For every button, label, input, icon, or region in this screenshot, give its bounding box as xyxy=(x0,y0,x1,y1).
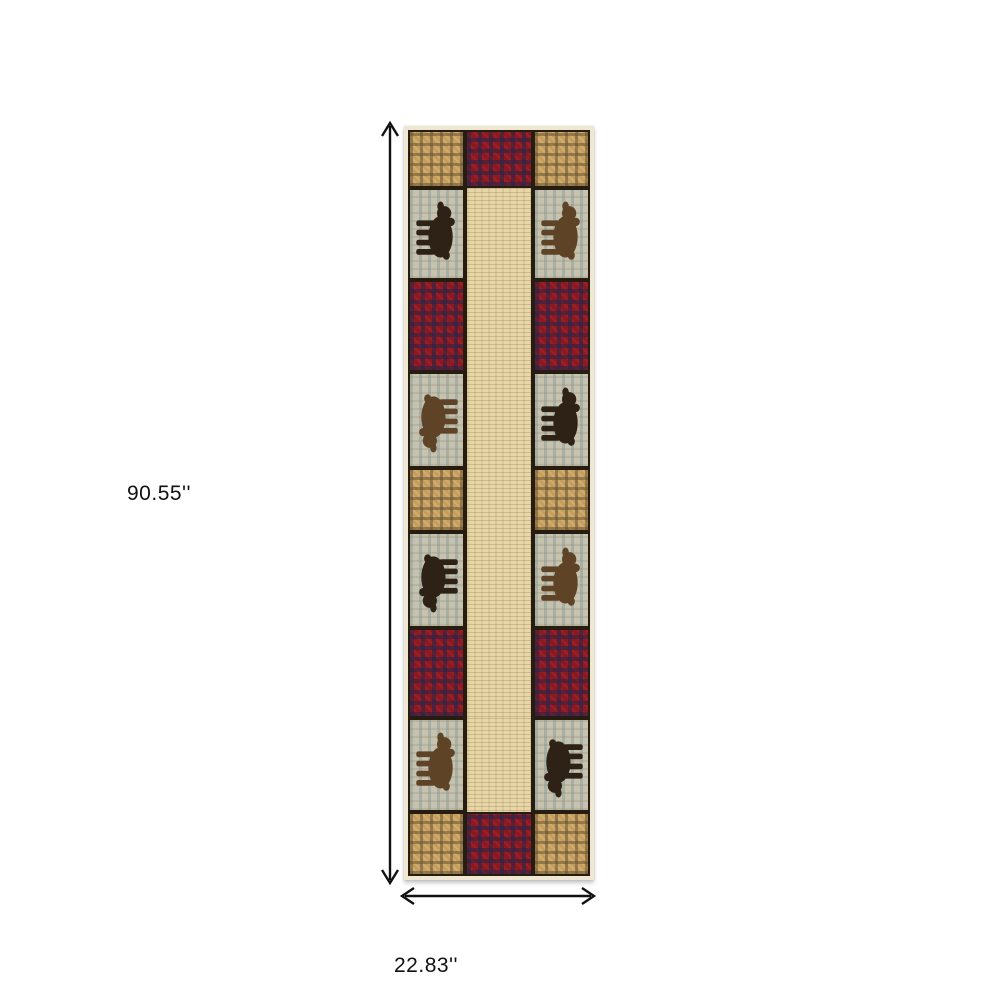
rug-cell-bear-dark-up xyxy=(408,188,465,280)
rug-cell-red xyxy=(465,812,533,876)
rug-row xyxy=(408,188,590,280)
bear-icon xyxy=(412,540,462,620)
rug-cell-red xyxy=(465,130,533,188)
rug-cell-beige xyxy=(465,468,533,532)
rug-cell-beige xyxy=(465,718,533,812)
bear-icon xyxy=(412,380,462,460)
rug-cell-plaid xyxy=(533,468,590,532)
rug-cell-bear-brown-down xyxy=(408,372,465,468)
product-dimension-diagram: 90.55'' 22.83'' xyxy=(0,0,1000,1000)
rug-cell-beige xyxy=(465,280,533,372)
rug-cell-red xyxy=(408,280,465,372)
height-arrow xyxy=(382,123,398,883)
rug-cell-beige xyxy=(465,628,533,718)
rug-patchwork-grid xyxy=(408,130,590,876)
bear-icon xyxy=(537,540,587,620)
rug-cell-plaid xyxy=(408,130,465,188)
rug-cell-red xyxy=(408,628,465,718)
rug-row xyxy=(408,468,590,532)
rug-row xyxy=(408,628,590,718)
rug-cell-bear-dark-down xyxy=(408,532,465,628)
rug-row xyxy=(408,532,590,628)
rug-cell-red xyxy=(533,628,590,718)
width-arrow xyxy=(402,888,594,904)
rug-cell-plaid xyxy=(408,812,465,876)
rug-cell-red xyxy=(533,280,590,372)
rug-row xyxy=(408,280,590,372)
rug-cell-bear-dark-up xyxy=(533,372,590,468)
rug-image xyxy=(404,126,594,880)
rug-cell-bear-brown-up xyxy=(533,532,590,628)
bear-icon xyxy=(412,194,462,274)
rug-cell-bear-brown-up xyxy=(408,718,465,812)
bear-icon xyxy=(537,194,587,274)
rug-cell-beige xyxy=(465,372,533,468)
rug-cell-plaid xyxy=(533,812,590,876)
rug-row xyxy=(408,718,590,812)
height-dimension-label: 90.55'' xyxy=(127,482,191,506)
rug-row xyxy=(408,130,590,188)
rug-cell-bear-dark-down xyxy=(533,718,590,812)
bear-icon xyxy=(537,725,587,805)
rug-cell-plaid xyxy=(533,130,590,188)
rug-cell-beige xyxy=(465,532,533,628)
rug-row xyxy=(408,372,590,468)
bear-icon xyxy=(537,380,587,460)
width-dimension-label: 22.83'' xyxy=(394,954,458,978)
rug-cell-beige xyxy=(465,188,533,280)
bear-icon xyxy=(412,725,462,805)
rug-cell-bear-brown-up xyxy=(533,188,590,280)
rug-row xyxy=(408,812,590,876)
rug-cell-plaid xyxy=(408,468,465,532)
